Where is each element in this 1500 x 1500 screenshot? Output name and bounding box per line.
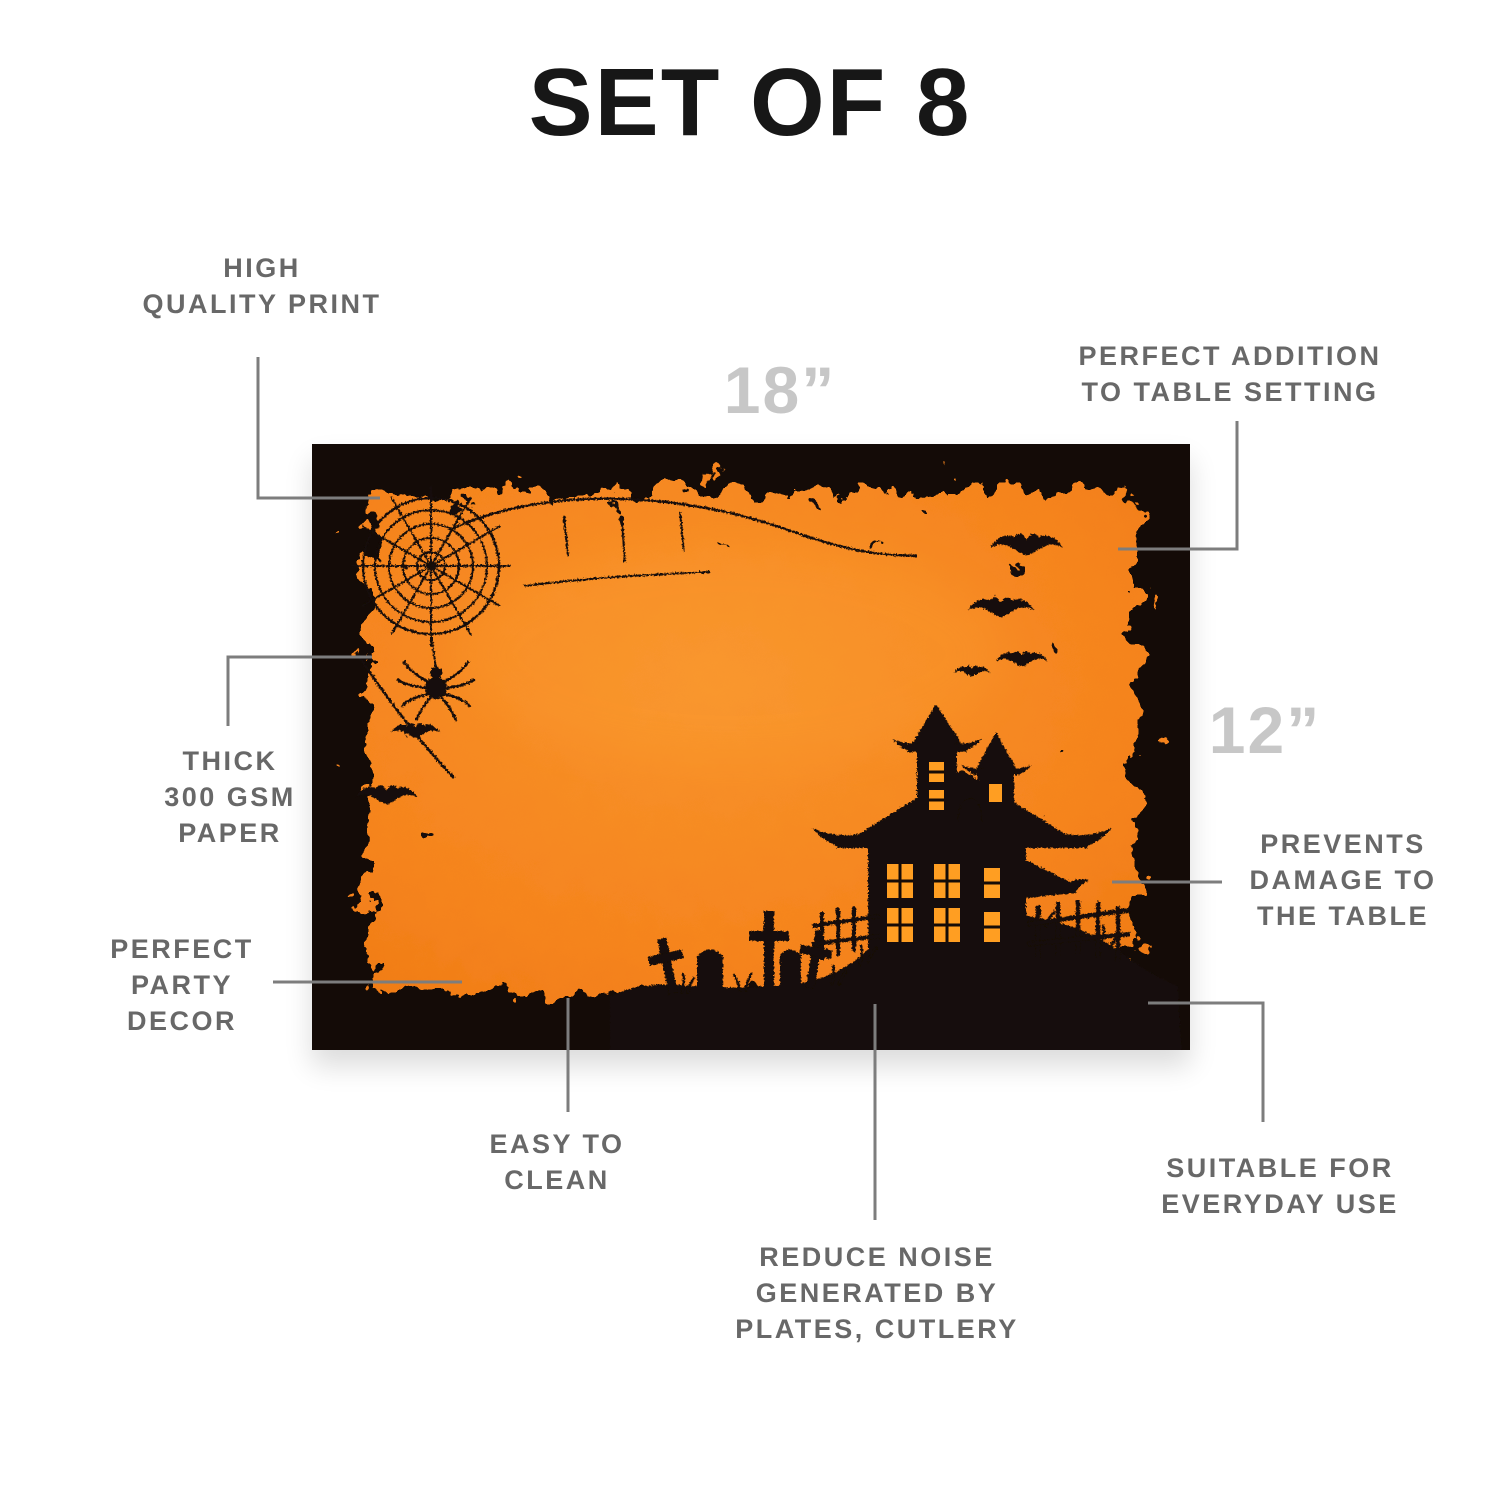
page-title: SET OF 8: [0, 48, 1500, 158]
callout-text-line: PARTY: [2, 967, 362, 1003]
callout-prevents-damage: PREVENTS DAMAGE TO THE TABLE: [1163, 826, 1500, 934]
callout-text-line: THICK: [50, 743, 410, 779]
callout-text-line: THE TABLE: [1163, 898, 1500, 934]
callout-text-line: PREVENTS: [1163, 826, 1500, 862]
callout-reduce-noise: REDUCE NOISE GENERATED BY PLATES, CUTLER…: [697, 1239, 1057, 1347]
callout-text-line: TO TABLE SETTING: [1050, 374, 1410, 410]
callout-perfect-party-decor: PERFECT PARTY DECOR: [2, 931, 362, 1039]
callout-text-line: DECOR: [2, 1003, 362, 1039]
callout-text-line: SUITABLE FOR: [1100, 1150, 1460, 1186]
callout-perfect-addition: PERFECT ADDITION TO TABLE SETTING: [1050, 338, 1410, 410]
placemat-image: [312, 444, 1190, 1050]
callout-text-line: PERFECT ADDITION: [1050, 338, 1410, 374]
callout-text-line: PAPER: [50, 815, 410, 851]
callout-suitable-everyday: SUITABLE FOR EVERYDAY USE: [1100, 1150, 1460, 1222]
callout-text-line: HIGH: [82, 250, 442, 286]
callout-thick-paper: THICK 300 GSM PAPER: [50, 743, 410, 851]
placemat-art: [312, 444, 1190, 1050]
tombstone-icon: [697, 950, 723, 1001]
callout-text-line: CLEAN: [377, 1162, 737, 1198]
callout-text-line: GENERATED BY: [697, 1275, 1057, 1311]
callout-text-line: PLATES, CUTLERY: [697, 1311, 1057, 1347]
tombstone-icon: [780, 950, 801, 1001]
callout-text-line: PERFECT: [2, 931, 362, 967]
callout-text-line: EASY TO: [377, 1126, 737, 1162]
callout-text-line: DAMAGE TO: [1163, 862, 1500, 898]
infographic-canvas: SET OF 8: [0, 0, 1500, 1500]
callout-text-line: EVERYDAY USE: [1100, 1186, 1460, 1222]
callout-text-line: QUALITY PRINT: [82, 286, 442, 322]
callout-text-line: REDUCE NOISE: [697, 1239, 1057, 1275]
callout-easy-to-clean: EASY TO CLEAN: [377, 1126, 737, 1198]
callout-text-line: 300 GSM: [50, 779, 410, 815]
width-dimension-label: 18”: [700, 352, 860, 428]
height-dimension-label: 12”: [1200, 692, 1330, 768]
callout-high-quality-print: HIGH QUALITY PRINT: [82, 250, 442, 322]
